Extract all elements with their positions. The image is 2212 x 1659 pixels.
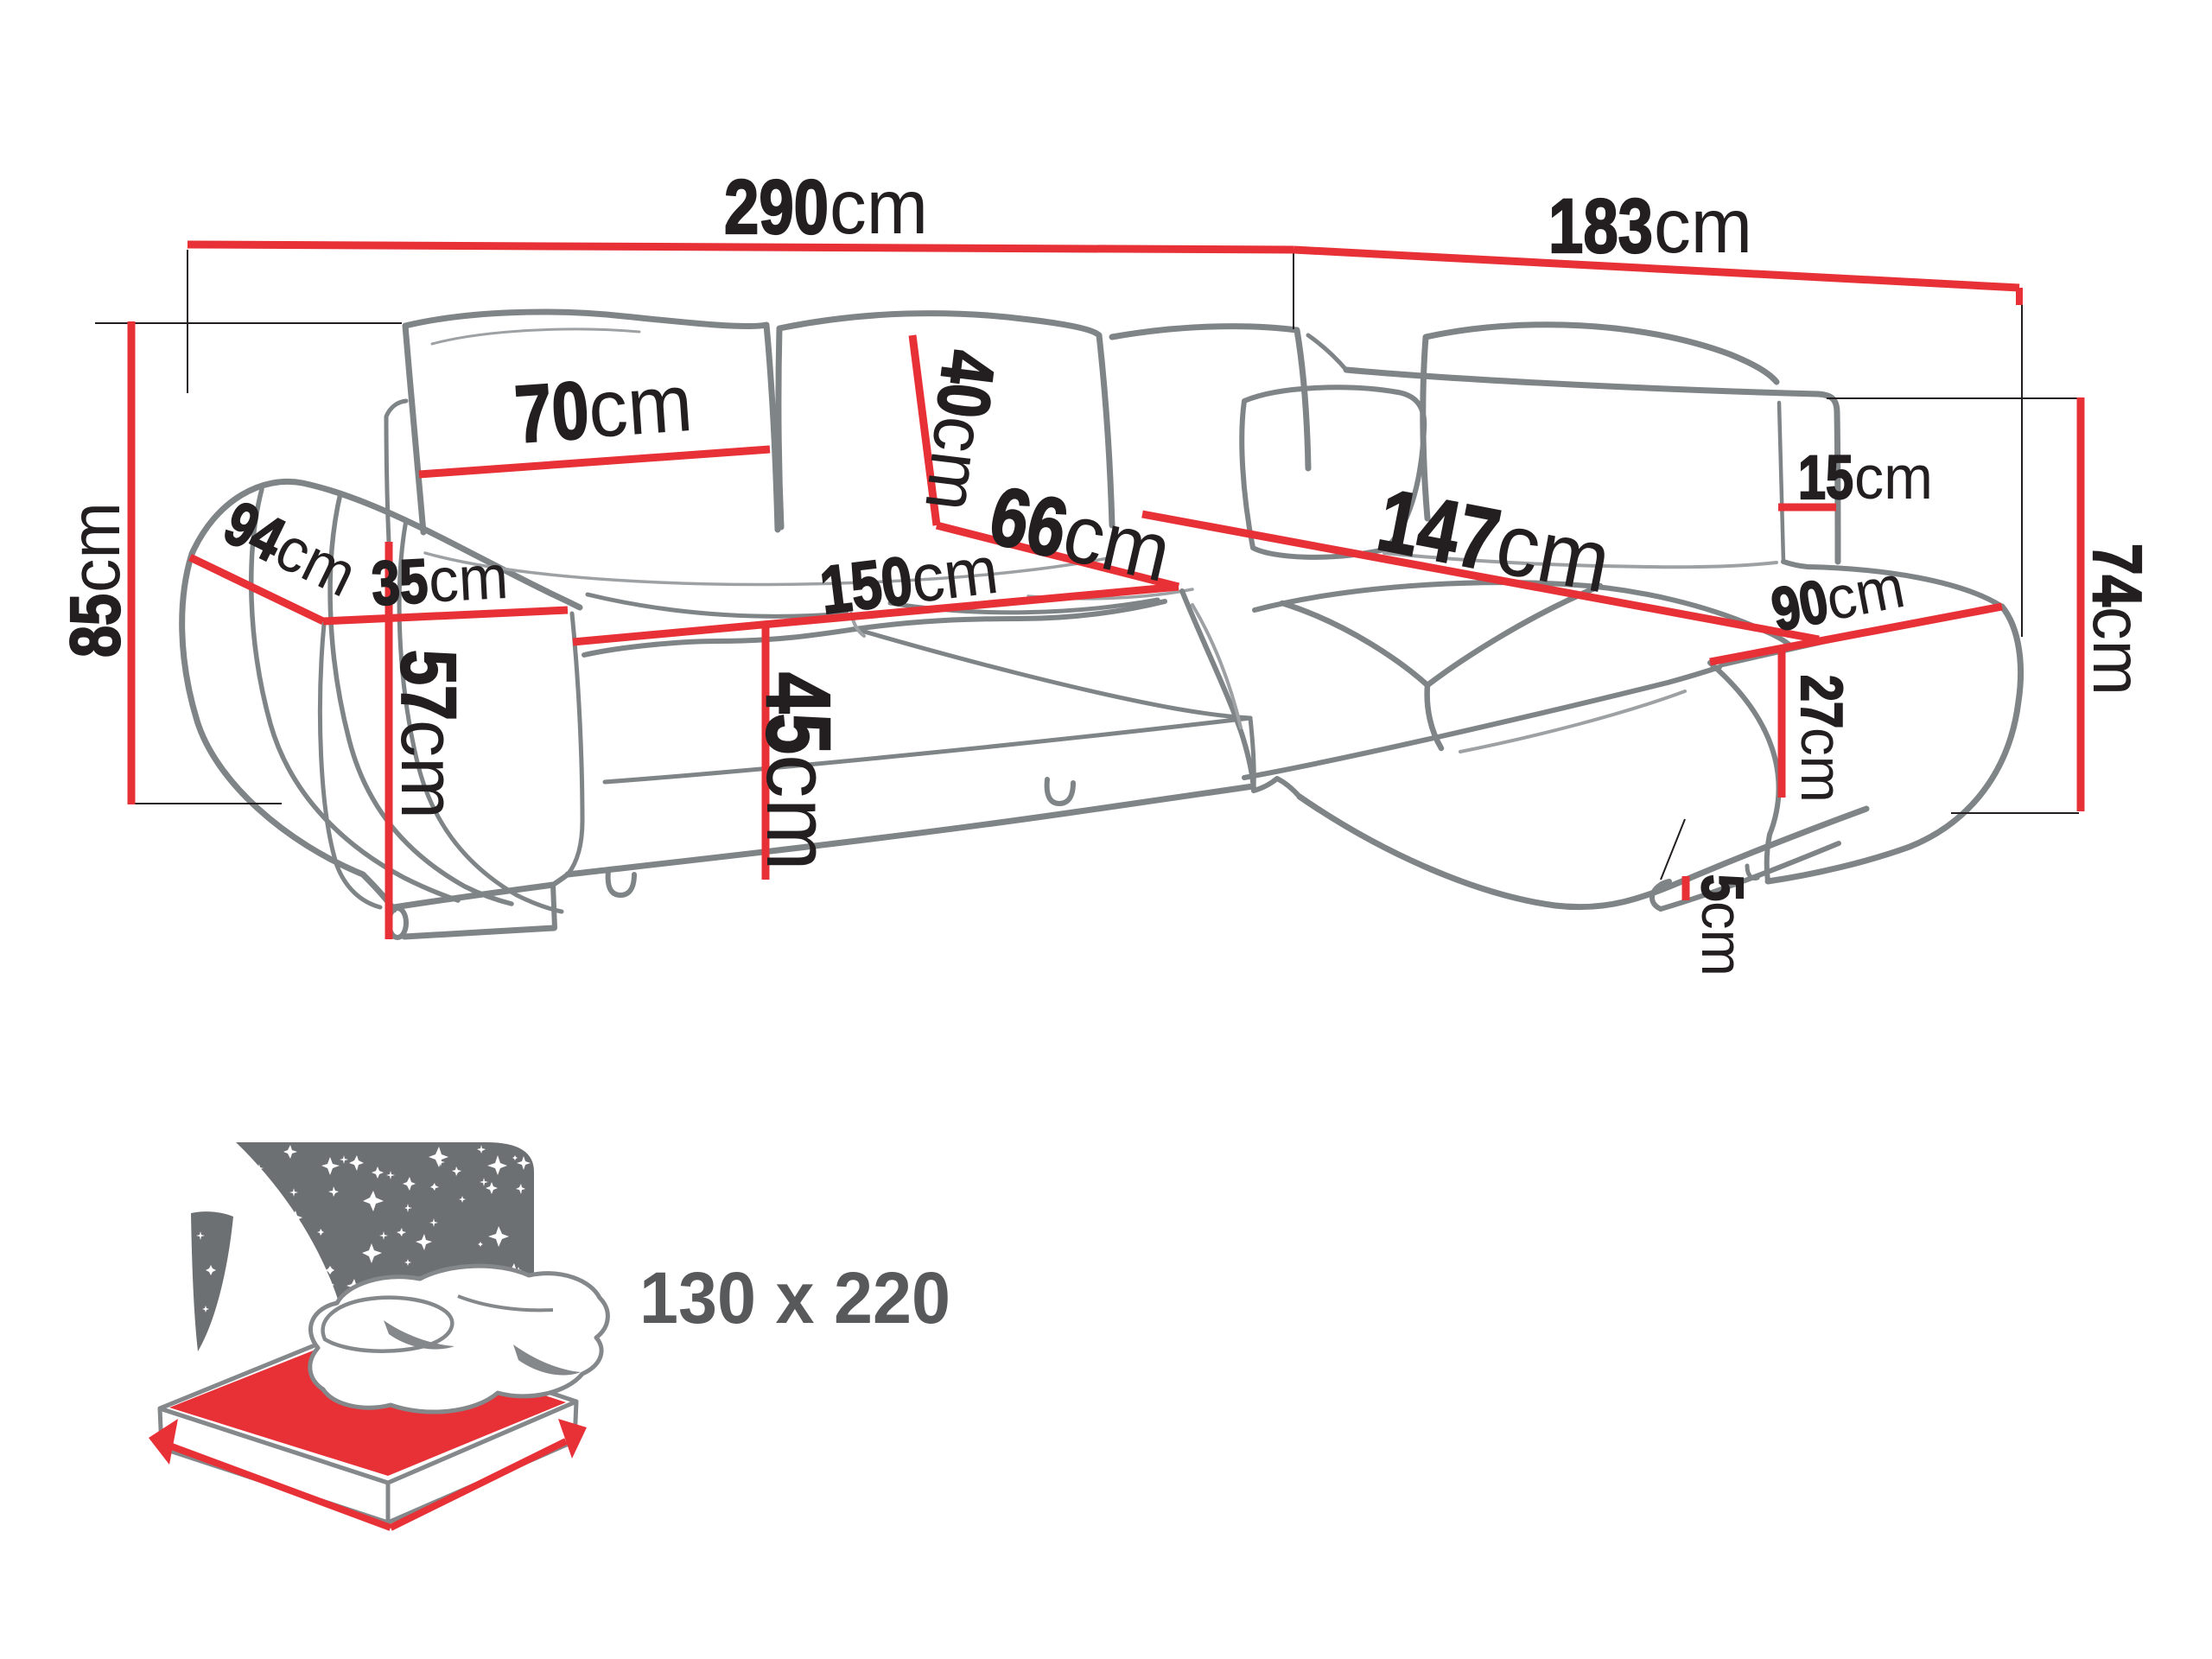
svg-text:cm: cm (907, 531, 1002, 618)
svg-text:cm: cm (56, 502, 135, 593)
svg-text:57: 57 (385, 650, 471, 721)
svg-text:45: 45 (747, 672, 849, 754)
svg-text:cm: cm (2079, 607, 2156, 696)
svg-text:150: 150 (817, 542, 917, 628)
svg-text:cm: cm (1654, 182, 1752, 269)
svg-text:cm: cm (1689, 901, 1755, 976)
svg-text:cm: cm (385, 720, 471, 819)
svg-text:74: 74 (2079, 543, 2156, 607)
svg-text:183: 183 (1548, 182, 1653, 269)
svg-text:70: 70 (512, 364, 592, 460)
svg-text:15: 15 (1798, 444, 1853, 512)
svg-text:27: 27 (1789, 675, 1854, 728)
svg-text:290: 290 (724, 163, 829, 250)
svg-text:cm: cm (585, 357, 695, 454)
svg-text:5: 5 (1689, 874, 1755, 901)
svg-text:cm: cm (427, 543, 510, 616)
svg-text:85: 85 (56, 594, 135, 658)
svg-text:cm: cm (909, 412, 1002, 516)
svg-text:cm: cm (1789, 728, 1854, 803)
svg-text:40: 40 (920, 346, 1010, 423)
svg-text:cm: cm (747, 754, 849, 871)
svg-text:cm: cm (829, 163, 928, 250)
svg-text:cm: cm (1854, 444, 1933, 512)
svg-text:35: 35 (370, 547, 429, 619)
svg-text:130 x 220: 130 x 220 (639, 1257, 950, 1338)
